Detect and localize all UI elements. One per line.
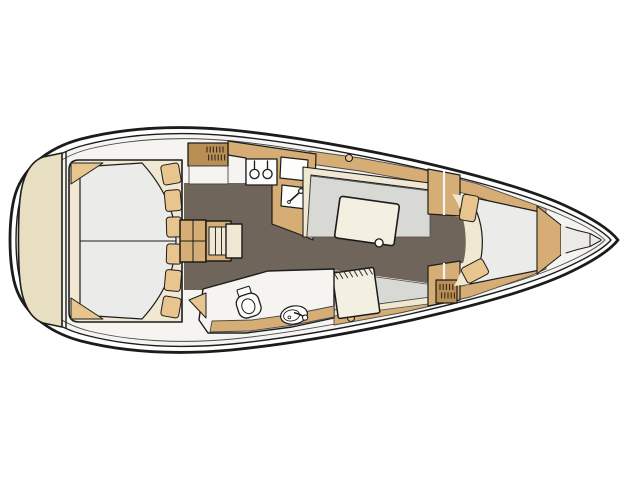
step-tread-lower <box>226 224 242 258</box>
chart-table <box>332 267 380 318</box>
wardrobe-locker <box>436 280 457 303</box>
aft-cabin <box>19 152 183 328</box>
pillow <box>164 269 182 291</box>
yacht-floor-plan <box>0 0 640 480</box>
step-treads <box>209 227 228 255</box>
companionway-steps <box>180 220 242 262</box>
pillow <box>160 163 181 186</box>
galley-cabinet-front <box>189 166 228 184</box>
table-leg <box>375 238 384 247</box>
pillow <box>160 296 181 319</box>
hanging-locker <box>188 143 228 166</box>
transom-seat-pad <box>19 153 63 327</box>
deck-ring-port <box>346 155 353 162</box>
pillow <box>164 189 182 211</box>
